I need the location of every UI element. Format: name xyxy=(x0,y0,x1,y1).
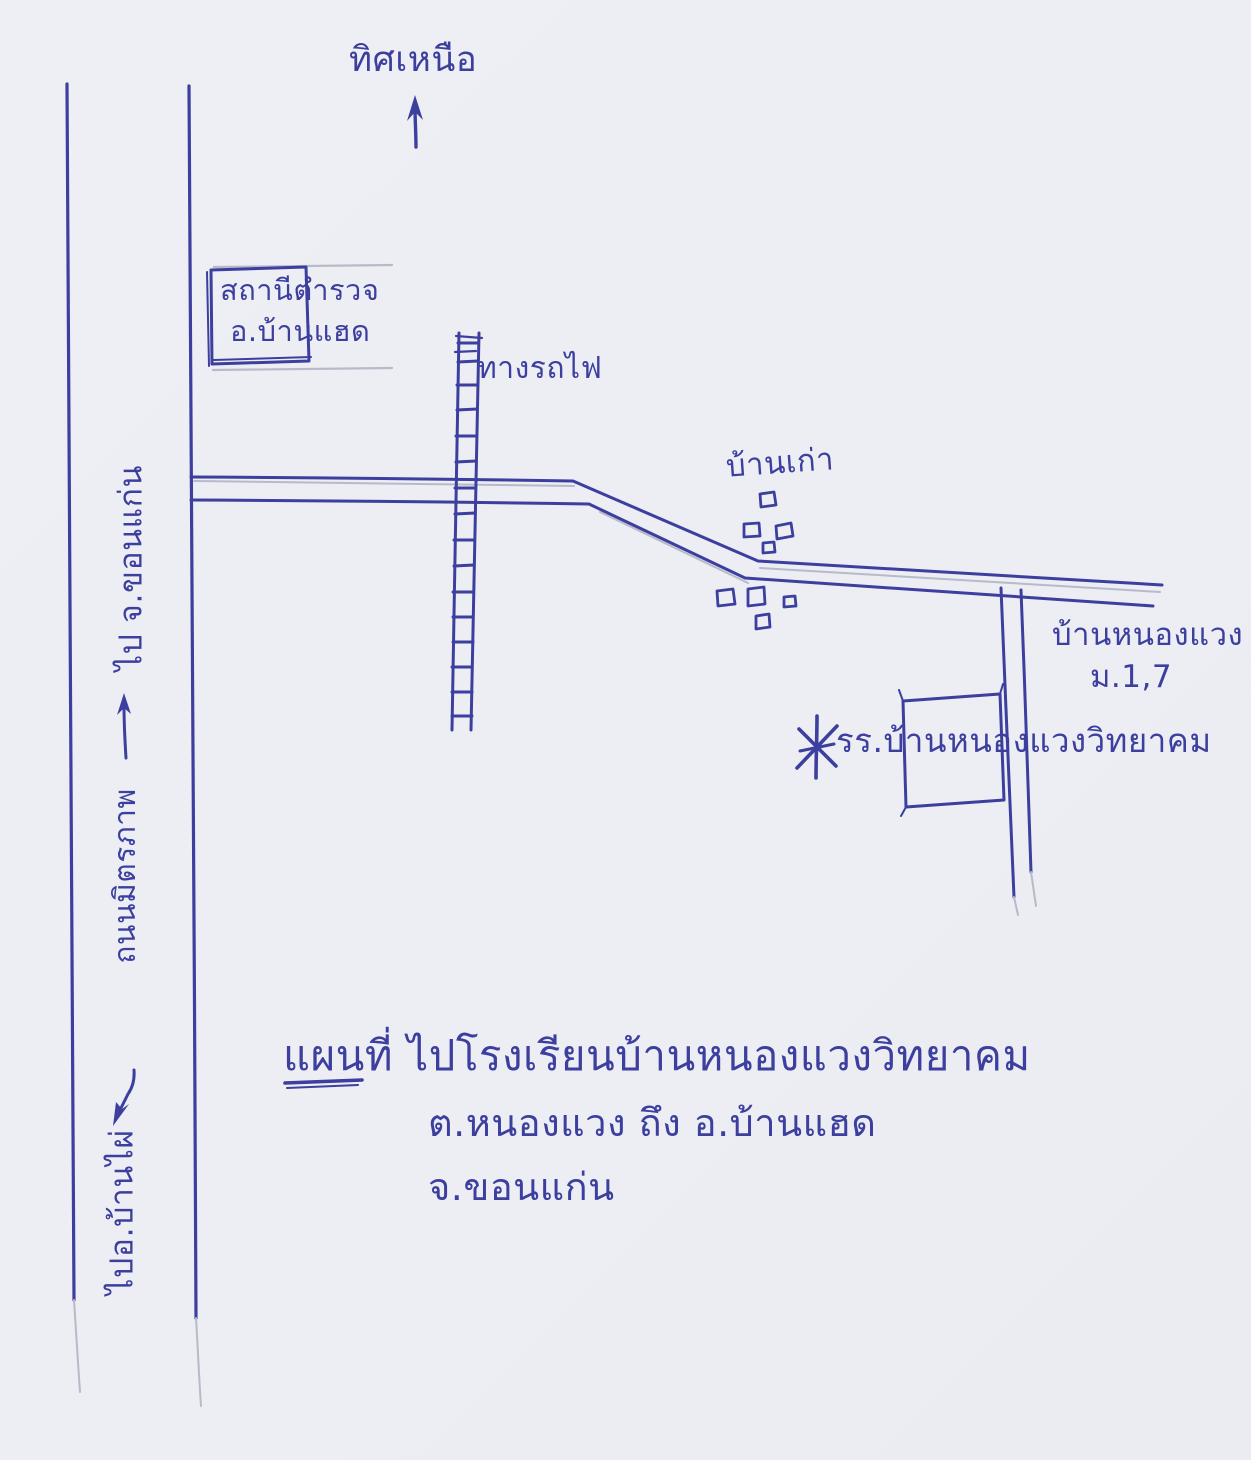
village-name-label: บ้านหนองแวง xyxy=(1052,618,1243,654)
police-station-line1: สถานีตำรวจ xyxy=(220,274,379,307)
north-arrow-icon xyxy=(407,95,423,147)
school-asterisk-marker xyxy=(797,716,837,778)
village-moo-label: ม.1,7 xyxy=(1090,660,1172,696)
school-name-label: รร.บ้านหนองแวงวิทยาคม xyxy=(836,722,1212,760)
railway-label: ทางรถไฟ xyxy=(477,352,602,387)
to-ban-phai-arrow-icon xyxy=(113,1070,134,1126)
north-label: ทิศเหนือ xyxy=(349,40,477,80)
map-title-word: แผนที่ xyxy=(283,1032,393,1080)
mittraphap-road-label: ถนนมิตรภาพ xyxy=(109,788,144,963)
title-underline xyxy=(285,1080,362,1088)
map-title-line1: แผนที่ ไปโรงเรียนบ้านหนองแวงวิทยาคม xyxy=(283,1032,1031,1080)
map-title-line1-rest: ไปโรงเรียนบ้านหนองแวงวิทยาคม xyxy=(407,1032,1031,1080)
to-ban-phai-label: ไปอ.บ้านไผ่ xyxy=(104,1129,141,1294)
map-title-line3: จ.ขอนแก่น xyxy=(428,1166,615,1210)
main-road-lines xyxy=(191,477,1162,606)
old-village-label: บ้านเก่า xyxy=(725,442,835,485)
railway-crossing xyxy=(452,333,482,730)
map-title-line2: ต.หนองแวง ถึง อ.บ้านแฮด xyxy=(428,1102,876,1146)
hand-drawn-map-page: ทิศเหนือ สถานีตำรวจ อ.บ้านแฮด ทางรถไฟ บ้… xyxy=(0,0,1251,1460)
to-khon-kaen-arrow-icon xyxy=(117,693,131,758)
police-station-line2: อ.บ้านแฮด xyxy=(230,315,379,348)
to-khon-kaen-label: ไป จ.ขอนแก่น xyxy=(113,465,150,671)
police-station-label: สถานีตำรวจ อ.บ้านแฮด xyxy=(220,274,379,349)
